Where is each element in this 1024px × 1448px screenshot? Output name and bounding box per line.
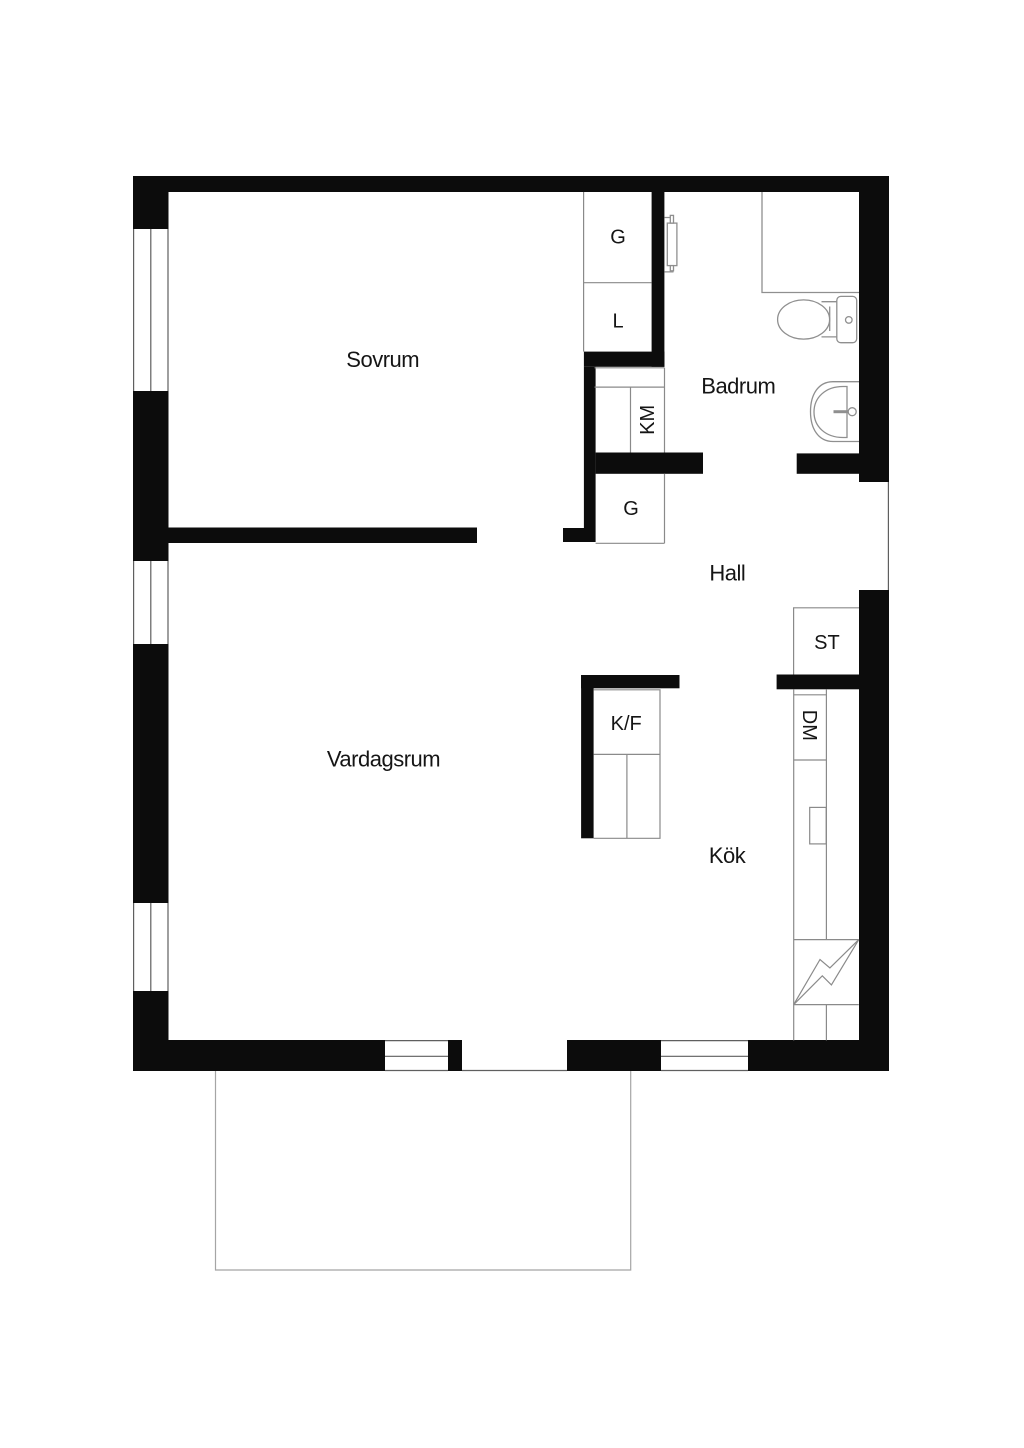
svg-text:Badrum: Badrum	[701, 373, 775, 398]
svg-text:K/F: K/F	[611, 713, 642, 735]
svg-text:G: G	[623, 498, 639, 520]
svg-text:Hall: Hall	[709, 561, 745, 586]
svg-text:DM: DM	[798, 710, 820, 741]
svg-text:G: G	[610, 226, 626, 248]
svg-text:Kök: Kök	[709, 843, 747, 868]
svg-text:ST: ST	[814, 632, 840, 654]
svg-text:Sovrum: Sovrum	[346, 347, 419, 372]
svg-text:L: L	[612, 310, 623, 332]
svg-text:Vardagsrum: Vardagsrum	[327, 747, 440, 772]
svg-text:KM: KM	[637, 405, 659, 435]
